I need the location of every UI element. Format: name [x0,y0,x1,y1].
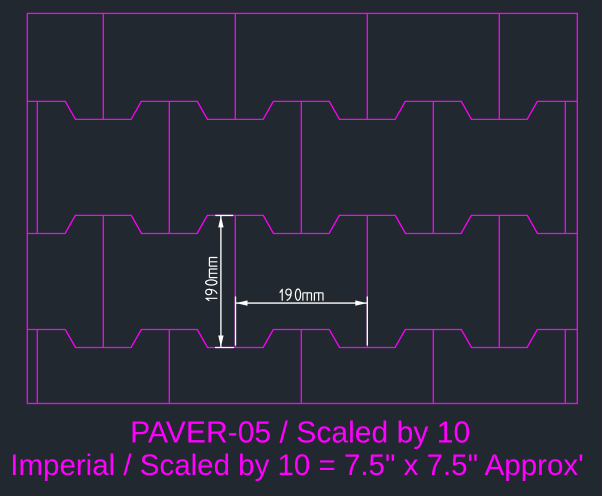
svg-text:Imperial / Scaled by 10 = 7.5": Imperial / Scaled by 10 = 7.5" x 7.5" Ap… [10,449,583,482]
svg-text:PAVER-05 / Scaled by 10: PAVER-05 / Scaled by 10 [130,416,470,449]
